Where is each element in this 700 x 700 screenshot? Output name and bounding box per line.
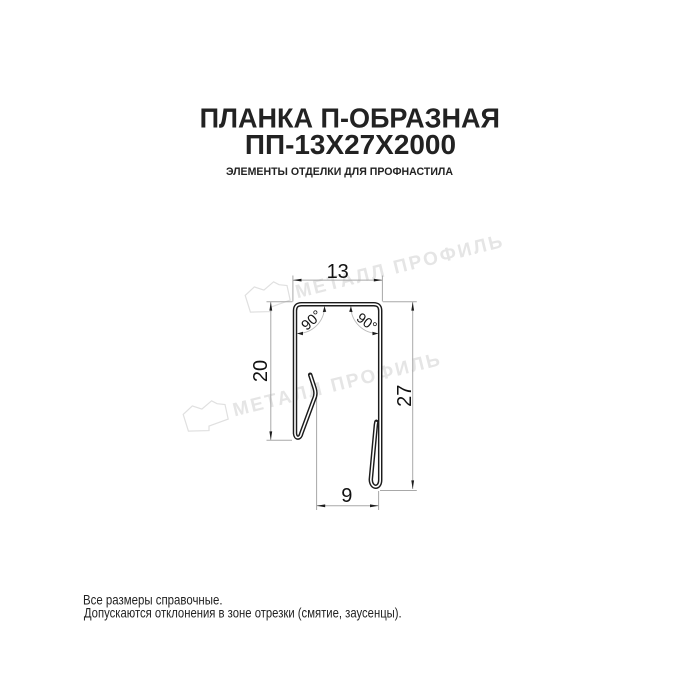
svg-text:13: 13: [327, 261, 349, 283]
svg-text:ПП-13Х27Х2000: ПП-13Х27Х2000: [245, 128, 456, 160]
svg-text:27: 27: [394, 385, 416, 407]
svg-text:ЭЛЕМЕНТЫ ОТДЕЛКИ ДЛЯ ПРОФНАСТИ: ЭЛЕМЕНТЫ ОТДЕЛКИ ДЛЯ ПРОФНАСТИЛА: [226, 166, 453, 178]
svg-text:90°: 90°: [299, 308, 326, 335]
svg-text:9: 9: [341, 485, 352, 507]
svg-text:20: 20: [250, 360, 272, 382]
svg-text:90°: 90°: [354, 309, 381, 334]
svg-text:Допускаются отклонения в зоне: Допускаются отклонения в зоне отрезки (с…: [84, 606, 402, 621]
svg-text:МЕТАЛЛ ПРОФИЛЬ: МЕТАЛЛ ПРОФИЛЬ: [293, 231, 506, 303]
